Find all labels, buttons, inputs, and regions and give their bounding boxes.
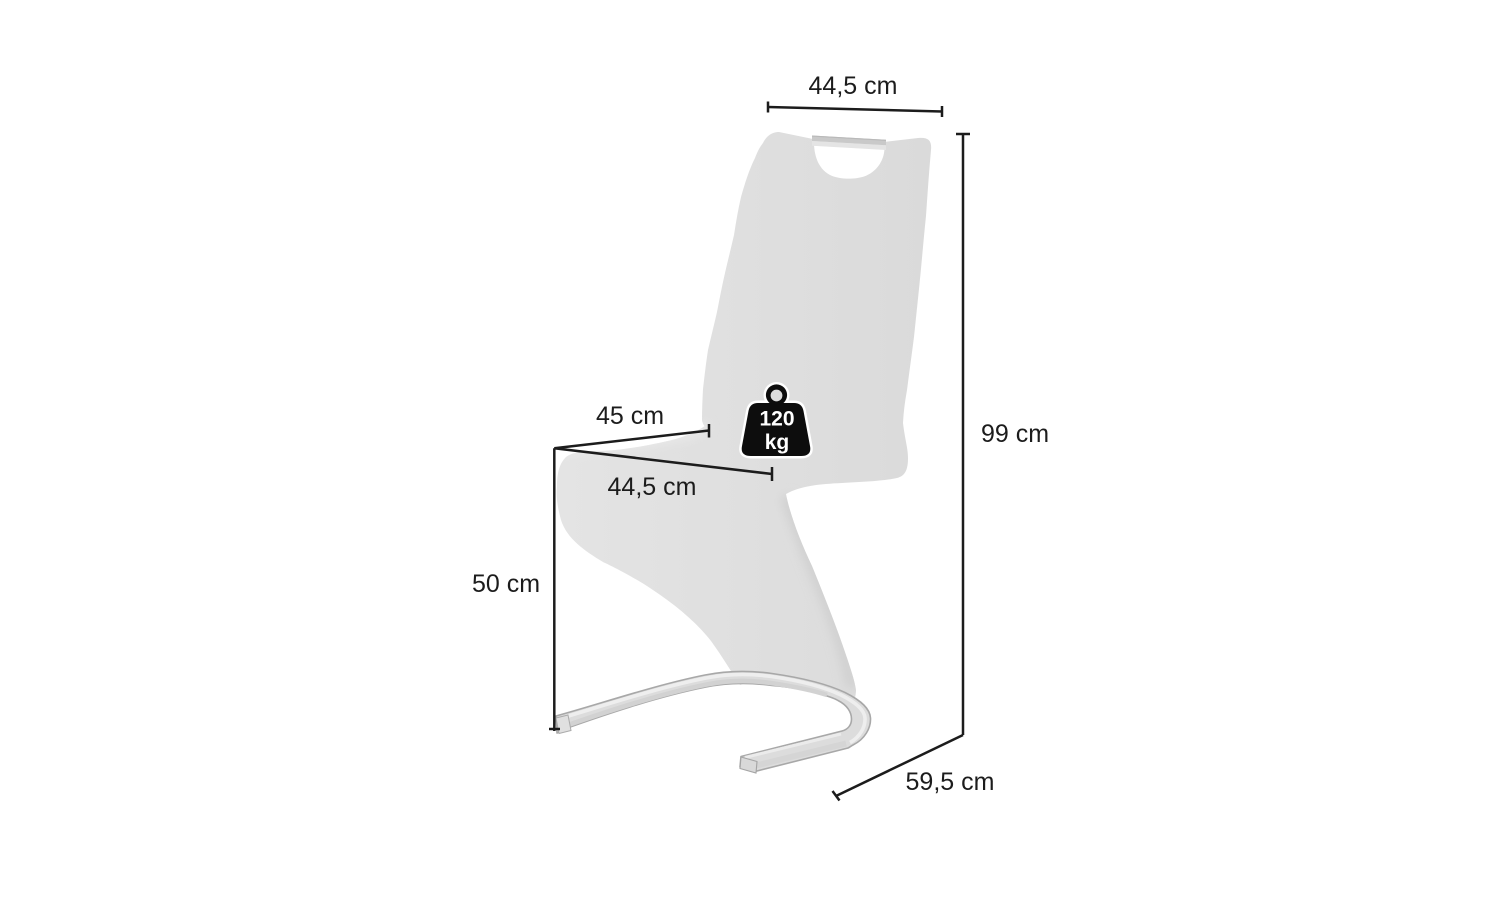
svg-text:44,5 cm: 44,5 cm xyxy=(809,72,898,100)
svg-text:kg: kg xyxy=(765,431,790,454)
svg-text:50 cm: 50 cm xyxy=(472,570,540,598)
svg-text:45 cm: 45 cm xyxy=(596,402,664,430)
svg-text:44,5 cm: 44,5 cm xyxy=(608,473,697,501)
svg-text:99 cm: 99 cm xyxy=(981,420,1049,448)
svg-text:120: 120 xyxy=(759,408,794,431)
svg-text:59,5 cm: 59,5 cm xyxy=(906,768,995,796)
